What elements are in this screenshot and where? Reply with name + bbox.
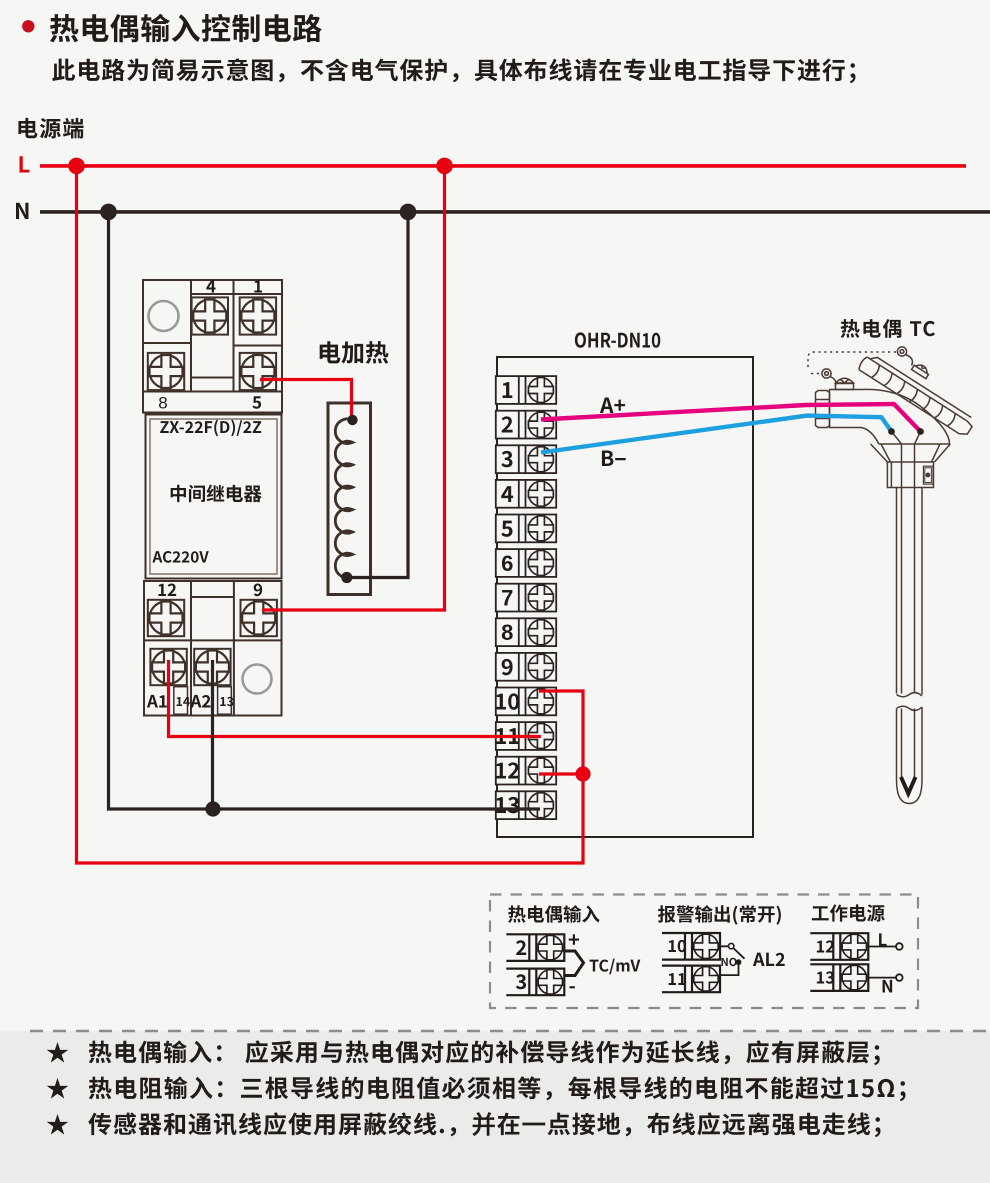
svg-text:13: 13: [494, 788, 520, 820]
svg-text:电源端: 电源端: [16, 112, 86, 144]
svg-text:2: 2: [515, 932, 527, 961]
svg-text:11: 11: [667, 966, 686, 990]
svg-text:12: 12: [816, 933, 835, 957]
svg-text:★: ★: [46, 1034, 69, 1068]
svg-text:10: 10: [667, 933, 686, 957]
svg-text:1: 1: [501, 373, 514, 405]
svg-text:AC220V: AC220V: [152, 546, 210, 568]
svg-text:8: 8: [158, 389, 167, 414]
svg-text:A1: A1: [146, 688, 168, 713]
svg-text:OHR-DN10: OHR-DN10: [574, 325, 661, 354]
svg-text:13: 13: [816, 965, 835, 989]
svg-text:10: 10: [494, 684, 520, 716]
svg-text:7: 7: [501, 581, 513, 613]
svg-text:热电偶输入控制电路: 热电偶输入控制电路: [49, 5, 323, 49]
svg-text:报警输出(常开): 报警输出(常开): [658, 901, 783, 927]
svg-text:12: 12: [157, 576, 177, 601]
svg-text:5: 5: [252, 389, 262, 414]
svg-text:B−: B−: [600, 443, 627, 473]
svg-text:8: 8: [501, 615, 513, 647]
svg-text:13: 13: [219, 691, 234, 710]
svg-text:1: 1: [253, 273, 263, 298]
svg-text:热电偶输入： 应采用与热电偶对应的补偿导线作为延长线，应有屏: 热电偶输入： 应采用与热电偶对应的补偿导线作为延长线，应有屏蔽层；: [88, 1033, 896, 1068]
svg-text:+: +: [568, 924, 580, 953]
svg-text:3: 3: [515, 966, 527, 995]
svg-text:4: 4: [501, 477, 514, 509]
svg-text:电加热: 电加热: [317, 334, 389, 369]
svg-text:NO: NO: [721, 954, 738, 970]
svg-text:热电偶 TC: 热电偶 TC: [840, 313, 937, 342]
svg-text:热电阻输入：三根导线的电阻值必须相等，每根导线的电阻不能超过: 热电阻输入：三根导线的电阻值必须相等，每根导线的电阻不能超过15Ω；: [88, 1069, 922, 1104]
svg-text:6: 6: [501, 546, 513, 578]
svg-text:此电路为简易示意图，不含电气保护，具体布线请在专业电工指导下: 此电路为简易示意图，不含电气保护，具体布线请在专业电工指导下进行；: [52, 51, 872, 86]
svg-text:传感器和通讯线应使用屏蔽绞线.，并在一点接地，布线应远离强电: 传感器和通讯线应使用屏蔽绞线.，并在一点接地，布线应远离强电走线；: [88, 1105, 897, 1140]
svg-text:★: ★: [46, 1070, 69, 1104]
svg-text:L: L: [878, 926, 888, 951]
svg-text:AL2: AL2: [752, 946, 786, 972]
svg-text:3: 3: [501, 442, 514, 474]
svg-text:A2: A2: [190, 688, 212, 713]
svg-text:4: 4: [206, 273, 216, 298]
svg-text:ZX-22F(D)/2Z: ZX-22F(D)/2Z: [160, 414, 263, 438]
svg-text:12: 12: [494, 754, 520, 786]
svg-text:工作电源: 工作电源: [811, 900, 886, 926]
svg-text:5: 5: [501, 511, 514, 543]
svg-text:N: N: [14, 194, 30, 226]
svg-text:L: L: [18, 147, 31, 179]
svg-text:TC/mV: TC/mV: [589, 953, 640, 977]
svg-text:9: 9: [253, 576, 263, 601]
svg-text:热电偶输入: 热电偶输入: [508, 901, 601, 927]
svg-text:★: ★: [46, 1106, 69, 1140]
svg-text:中间继电器: 中间继电器: [169, 480, 262, 507]
svg-text:9: 9: [501, 650, 514, 682]
svg-text:14: 14: [176, 691, 191, 710]
svg-text:N: N: [881, 973, 894, 998]
svg-text:2: 2: [501, 408, 514, 440]
